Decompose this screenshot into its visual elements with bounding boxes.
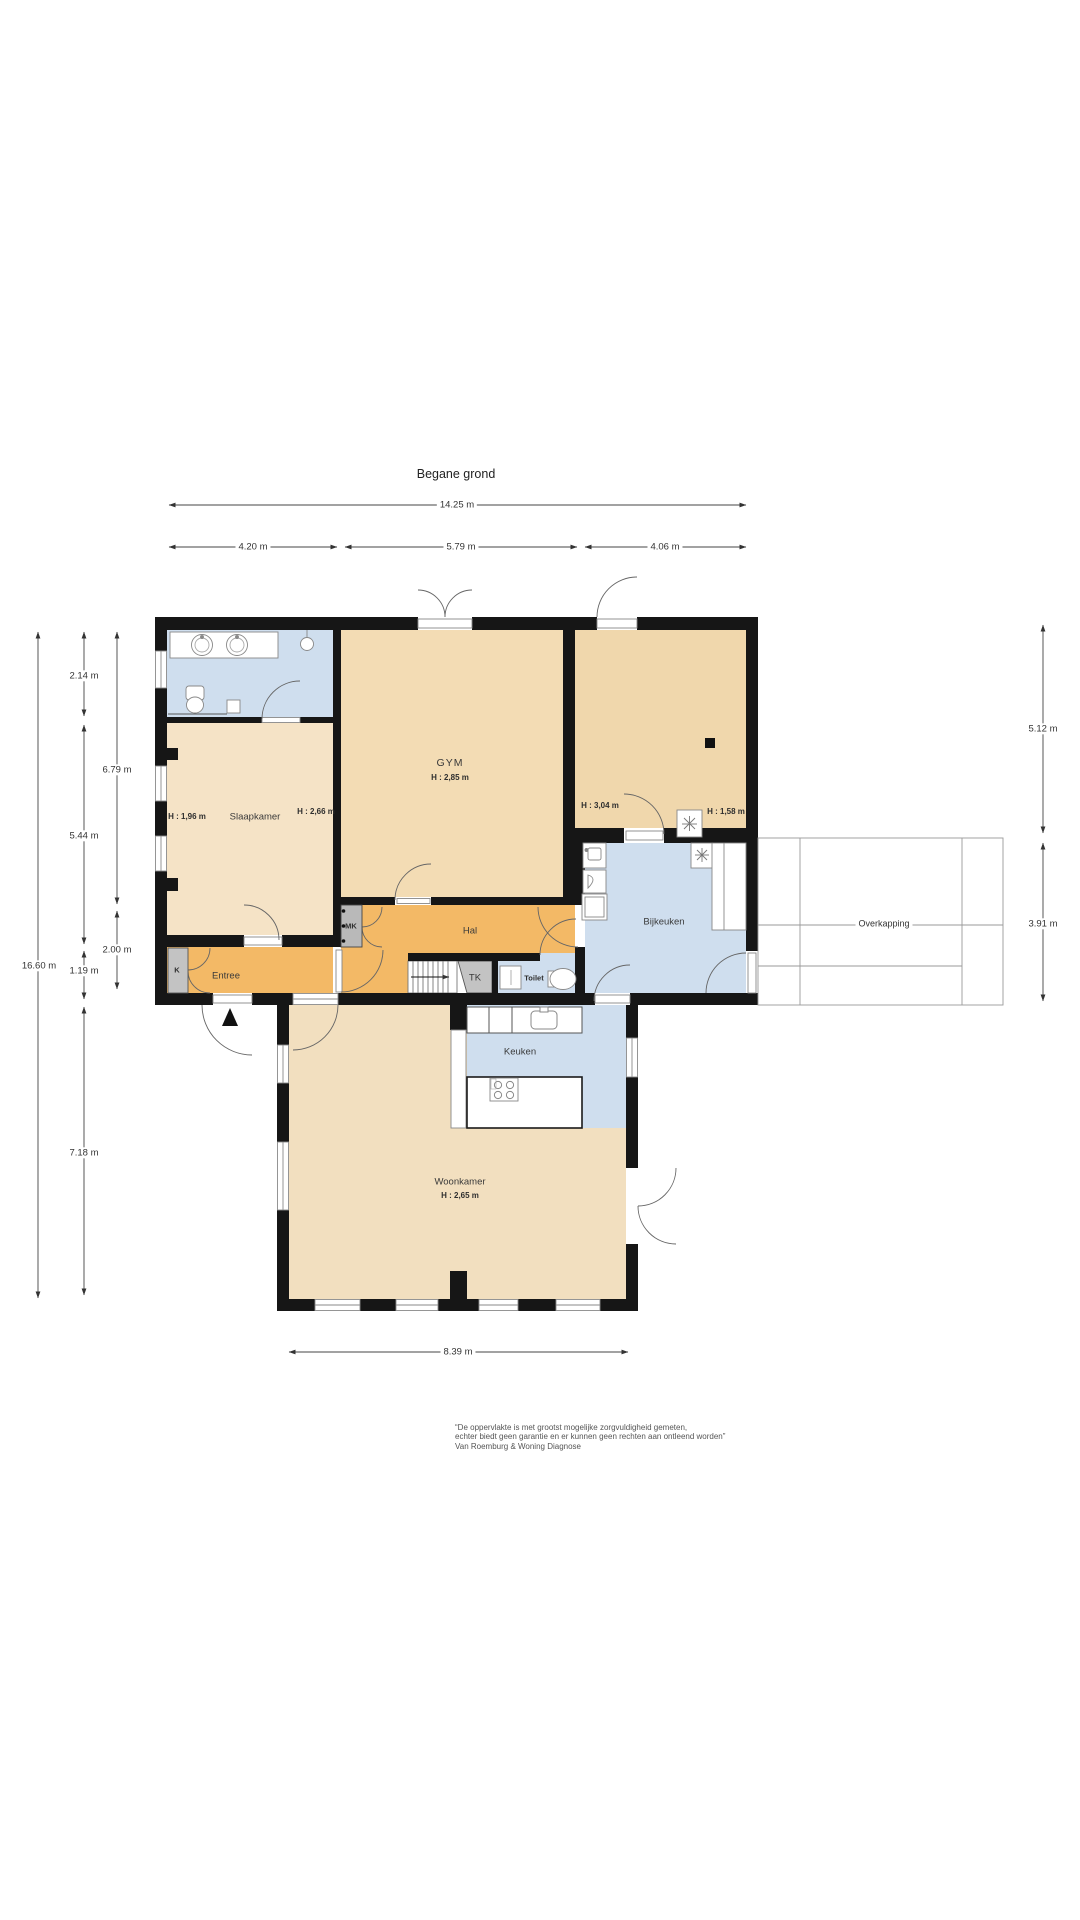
dim-woon-w: 8.39 m [440, 1346, 475, 1357]
dim-total-height: 16.60 m [19, 960, 59, 971]
kitchen-counter [467, 1007, 582, 1033]
dim-seg-a: 4.20 m [235, 541, 270, 552]
dim-seg-c: 4.06 m [647, 541, 682, 552]
room-height-slaapkamer-r: H : 2,66 m [297, 808, 335, 816]
room-height-woonkamer: H : 2,65 m [441, 1192, 479, 1200]
floorplan-drawing [0, 0, 1080, 1920]
dim-slaap-h: 5.44 m [66, 830, 101, 841]
room-height-gym: H : 2,85 m [431, 774, 469, 782]
room-label-keuken: Keuken [504, 1047, 536, 1057]
room-label-bijkeuken: Bijkeuken [643, 917, 684, 927]
room-label-hal: Hal [463, 926, 477, 936]
page-title: Begane grond [417, 467, 496, 481]
utility-cabinet [712, 843, 746, 930]
dim-bath-h: 2.14 m [66, 670, 101, 681]
room-height-rightroom-r: H : 1,58 m [707, 808, 745, 816]
right-room-marker [705, 738, 715, 748]
room-height-slaapkamer-l: H : 1,96 m [168, 813, 206, 821]
room-label-mk: MK [345, 922, 357, 930]
dim-right-b: 3.91 m [1025, 918, 1060, 929]
dim-seg-b: 5.79 m [443, 541, 478, 552]
room-label-k: K [174, 966, 179, 974]
room-height-rightroom-l: H : 3,04 m [581, 802, 619, 810]
entrance-arrow [222, 1008, 238, 1026]
dim-col2-a: 6.79 m [99, 764, 134, 775]
room-label-woonkamer: Woonkamer [434, 1177, 485, 1187]
room-label-entree: Entree [212, 971, 240, 981]
dim-entree-h: 1.19 m [66, 965, 101, 976]
overkapping-label: Overkapping [855, 919, 912, 930]
dim-woon-h: 7.18 m [66, 1147, 101, 1158]
utility-appliances [582, 843, 607, 920]
staircase [408, 961, 457, 993]
dim-col2-b: 2.00 m [99, 944, 134, 955]
dim-total-width: 14.25 m [437, 499, 477, 510]
bathroom-vanity [170, 632, 278, 658]
room-label-tk: TK [469, 973, 481, 983]
room-label-toilet: Toilet [524, 974, 543, 982]
kitchen-tall-cabinet [451, 1030, 466, 1128]
dim-right-a: 5.12 m [1025, 723, 1060, 734]
floorplan-page: Begane grond 14.25 m 4.20 m 5.79 m 4.06 … [0, 0, 1080, 1920]
kitchen-island [467, 1077, 582, 1128]
room-label-gym: GYM [437, 758, 464, 769]
room-label-slaapkamer: Slaapkamer [230, 812, 281, 822]
